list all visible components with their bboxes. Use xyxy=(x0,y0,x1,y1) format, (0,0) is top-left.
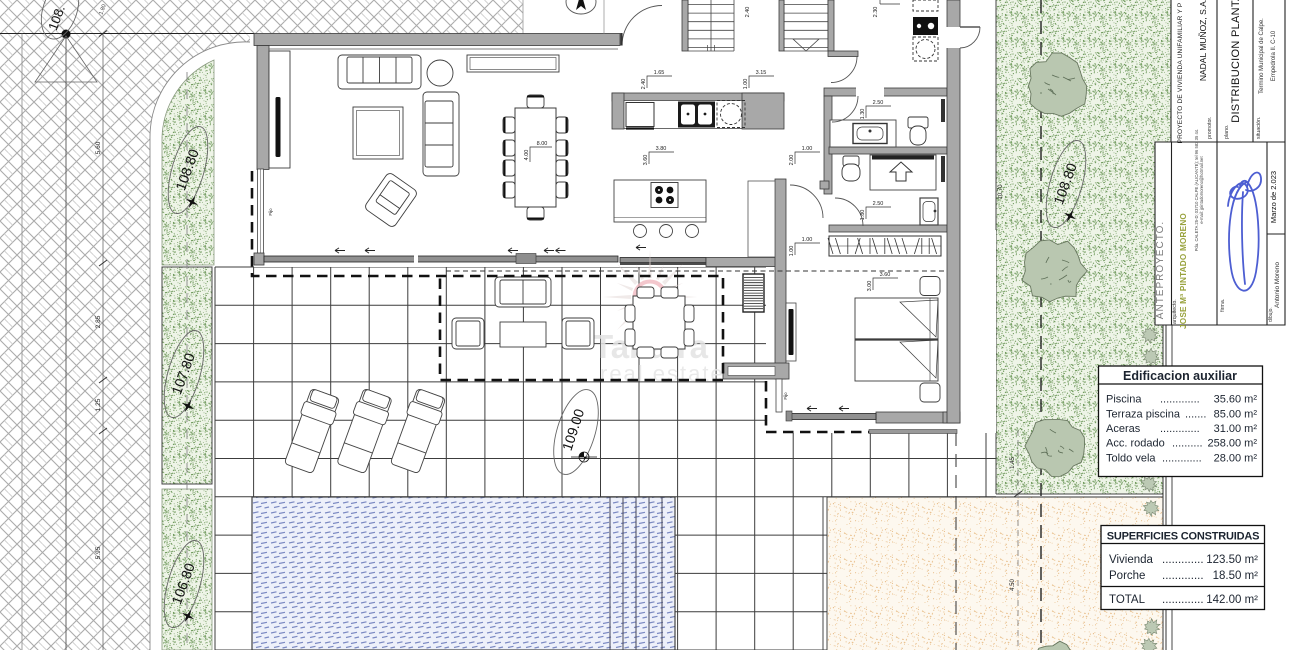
svg-text:.............: ............. xyxy=(1160,394,1200,406)
svg-text:promotor.: promotor. xyxy=(1207,117,1213,139)
svg-text:3.60: 3.60 xyxy=(643,155,649,166)
svg-text:18.50 m²: 18.50 m² xyxy=(1213,570,1259,582)
svg-text:Acc. rodado: Acc. rodado xyxy=(1106,438,1165,450)
svg-text:ANTEPROYECTO.: ANTEPROYECTO. xyxy=(1155,221,1166,319)
svg-text:JOSE Mª PINTADO MORENO: JOSE Mª PINTADO MORENO xyxy=(1179,213,1188,329)
svg-text:1.00: 1.00 xyxy=(743,79,749,90)
svg-text:3.60: 3.60 xyxy=(880,272,891,278)
svg-text:situación.: situación. xyxy=(1256,117,1262,139)
svg-text:..........: .......... xyxy=(1172,438,1203,450)
svg-text:Edificacion auxiliar: Edificacion auxiliar xyxy=(1123,369,1237,383)
svg-text:4.50: 4.50 xyxy=(1010,579,1016,591)
svg-text:2.50: 2.50 xyxy=(873,100,884,106)
svg-text:1.00: 1.00 xyxy=(802,146,813,152)
svg-text:1.30: 1.30 xyxy=(860,109,866,120)
svg-text:8.00: 8.00 xyxy=(537,141,548,147)
svg-text:85.00 m²: 85.00 m² xyxy=(1214,409,1258,421)
svg-text:.............: ............. xyxy=(1162,453,1202,465)
svg-text:Piscina: Piscina xyxy=(1106,394,1142,406)
svg-text:35.60 m²: 35.60 m² xyxy=(1214,394,1258,406)
svg-text:Marzo de 2.023: Marzo de 2.023 xyxy=(1269,171,1278,223)
svg-text:Fijo: Fijo xyxy=(268,208,273,216)
svg-text:1.65: 1.65 xyxy=(654,70,665,76)
svg-text:5.60: 5.60 xyxy=(95,141,102,154)
svg-text:.............: ............. xyxy=(1162,594,1204,606)
svg-text:Aceras: Aceras xyxy=(1106,423,1141,435)
svg-text:10.70: 10.70 xyxy=(998,184,1004,200)
svg-text:.......: ....... xyxy=(1185,409,1206,421)
svg-text:PROYECTO DE VIVIENDA UNIFAMILI: PROYECTO DE VIVIENDA UNIFAMILIAR Y P xyxy=(1177,3,1184,144)
svg-text:.............: ............. xyxy=(1162,554,1204,566)
svg-text:Porche: Porche xyxy=(1109,570,1145,582)
svg-text:2.30: 2.30 xyxy=(873,7,879,18)
svg-text:Termino Municipal de Calpe.: Termino Municipal de Calpe. xyxy=(1259,18,1265,94)
svg-text:2.40: 2.40 xyxy=(745,7,751,18)
svg-text:Toldo vela: Toldo vela xyxy=(1106,453,1156,465)
svg-text:2.50: 2.50 xyxy=(873,201,884,207)
svg-text:Terraza piscina: Terraza piscina xyxy=(1106,409,1181,421)
svg-text:28.00 m²: 28.00 m² xyxy=(1214,453,1258,465)
svg-text:NADAL MUÑOZ, S.A.: NADAL MUÑOZ, S.A. xyxy=(1198,0,1208,81)
svg-text:4.00: 4.00 xyxy=(524,150,530,161)
svg-text:142.00 m²: 142.00 m² xyxy=(1206,594,1258,606)
svg-text:dibujo.: dibujo. xyxy=(1268,307,1274,322)
svg-text:3.00: 3.00 xyxy=(867,281,873,292)
svg-text:Antonio Moreno: Antonio Moreno xyxy=(1274,262,1281,308)
svg-text:2.85: 2.85 xyxy=(95,315,102,328)
svg-text:DISTRIBUCION PLANTA: DISTRIBUCION PLANTA xyxy=(1230,0,1242,123)
svg-text:123.50 m²: 123.50 m² xyxy=(1206,554,1258,566)
svg-text:.............: ............. xyxy=(1162,570,1204,582)
svg-text:.............: ............. xyxy=(1160,423,1200,435)
svg-text:1.80: 1.80 xyxy=(860,210,866,221)
svg-text:SUPERFICIES CONSTRUIDAS: SUPERFICIES CONSTRUIDAS xyxy=(1107,531,1259,543)
svg-text:3.80: 3.80 xyxy=(656,146,667,152)
svg-text:Empedrola II. C-10: Empedrola II. C-10 xyxy=(1271,30,1277,81)
svg-text:31.00 m²: 31.00 m² xyxy=(1214,423,1258,435)
svg-text:plano.: plano. xyxy=(1224,125,1230,139)
svg-text:e-mail: jpintadomoreno@hotmail: e-mail: jpintadomoreno@hotmail.net xyxy=(1199,156,1204,224)
svg-text:5.95: 5.95 xyxy=(95,546,102,559)
svg-text:firma.: firma. xyxy=(1220,299,1226,312)
svg-text:Vivienda: Vivienda xyxy=(1109,554,1154,566)
svg-text:Fijo: Fijo xyxy=(783,392,788,400)
svg-text:3.15: 3.15 xyxy=(756,70,767,76)
svg-text:258.00 m²: 258.00 m² xyxy=(1207,438,1257,450)
svg-text:1.00: 1.00 xyxy=(789,246,795,257)
svg-text:arquitecto.: arquitecto. xyxy=(1172,299,1178,324)
svg-text:TOTAL: TOTAL xyxy=(1109,594,1146,606)
svg-text:2.00: 2.00 xyxy=(789,155,795,166)
svg-text:real estate: real estate xyxy=(600,361,725,386)
svg-text:2.40: 2.40 xyxy=(641,79,647,90)
svg-text:1.00: 1.00 xyxy=(802,237,813,243)
svg-text:1.45: 1.45 xyxy=(1010,457,1016,469)
svg-text:1.25: 1.25 xyxy=(95,398,102,411)
